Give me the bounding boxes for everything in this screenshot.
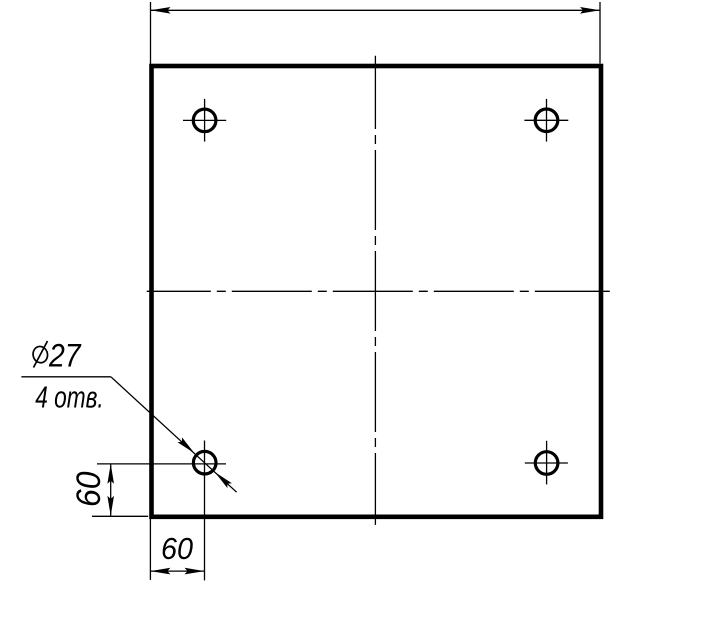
svg-text:27: 27	[48, 338, 82, 374]
svg-text:60: 60	[161, 531, 193, 566]
svg-text:60: 60	[70, 471, 108, 507]
svg-text:4 omв.: 4 omв.	[35, 380, 104, 415]
